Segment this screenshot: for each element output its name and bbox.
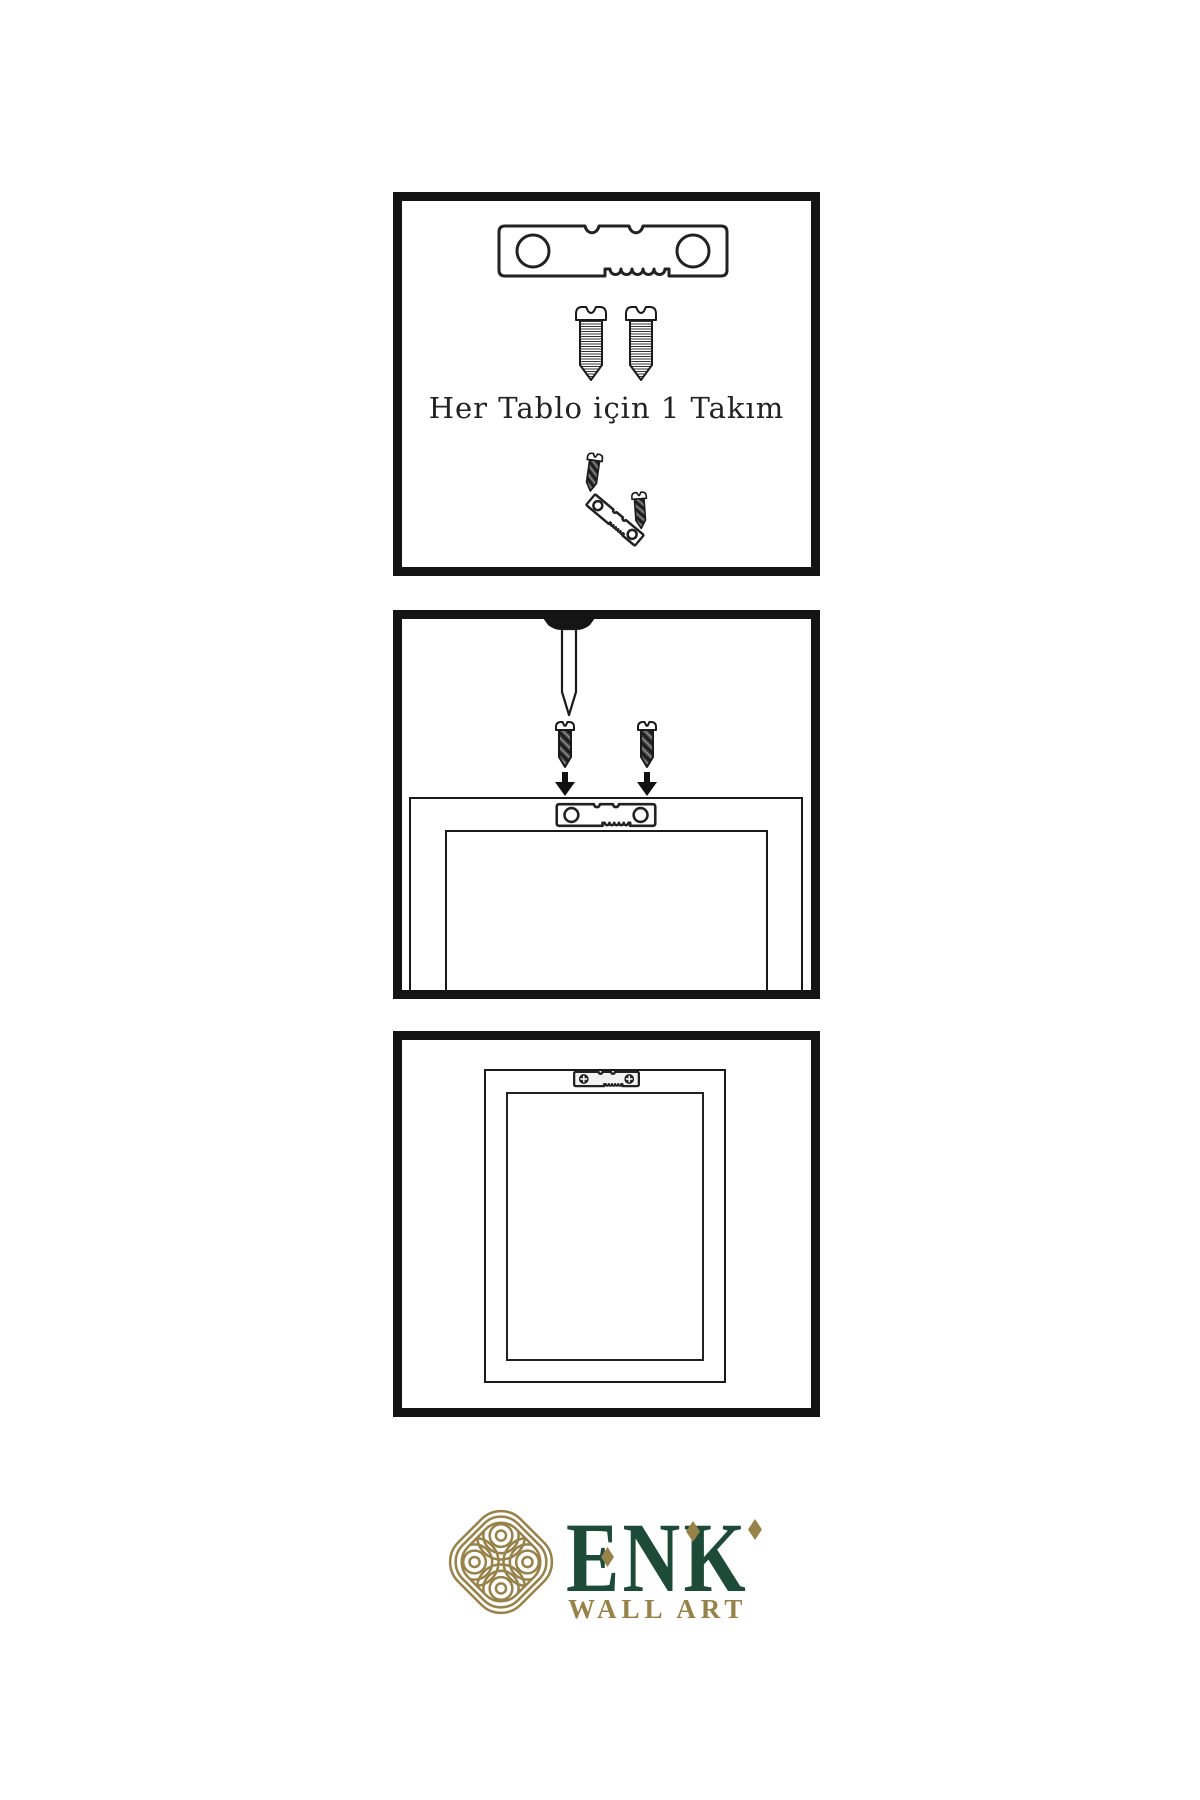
brand-name: ENK xyxy=(566,1508,749,1608)
sawtooth-hanger-with-screws-icon xyxy=(573,1068,640,1090)
frame-front-inner-outline xyxy=(506,1092,704,1361)
down-arrow-icon xyxy=(555,772,575,796)
kit-caption: Her Tablo için 1 Takım xyxy=(402,391,811,425)
sawtooth-hanger-icon xyxy=(555,802,657,828)
panel-hardware-kit: Her Tablo için 1 Takım xyxy=(393,192,820,576)
wall-nail-icon xyxy=(542,618,596,720)
diamond-accent-icon xyxy=(748,1519,762,1540)
screw-icon xyxy=(571,303,611,383)
panel-hung-frame xyxy=(393,1031,820,1417)
down-arrow-icon xyxy=(637,772,657,796)
dark-screw-icon xyxy=(635,719,659,769)
frame-back-inner-outline xyxy=(445,830,768,994)
screw-icon xyxy=(621,303,661,383)
brand-logo: ENK WALL ART xyxy=(430,1490,830,1650)
brand-subtitle: WALL ART xyxy=(568,1594,747,1625)
interlaced-knot-icon xyxy=(438,1496,564,1628)
dark-screw-icon xyxy=(629,489,652,530)
dark-screw-icon xyxy=(553,719,577,769)
sawtooth-hanger-icon xyxy=(495,222,731,280)
panel-mounting-diagram xyxy=(393,610,820,999)
instruction-sheet: Her Tablo için 1 Takım xyxy=(0,0,1200,1800)
dark-screw-icon xyxy=(580,450,606,494)
